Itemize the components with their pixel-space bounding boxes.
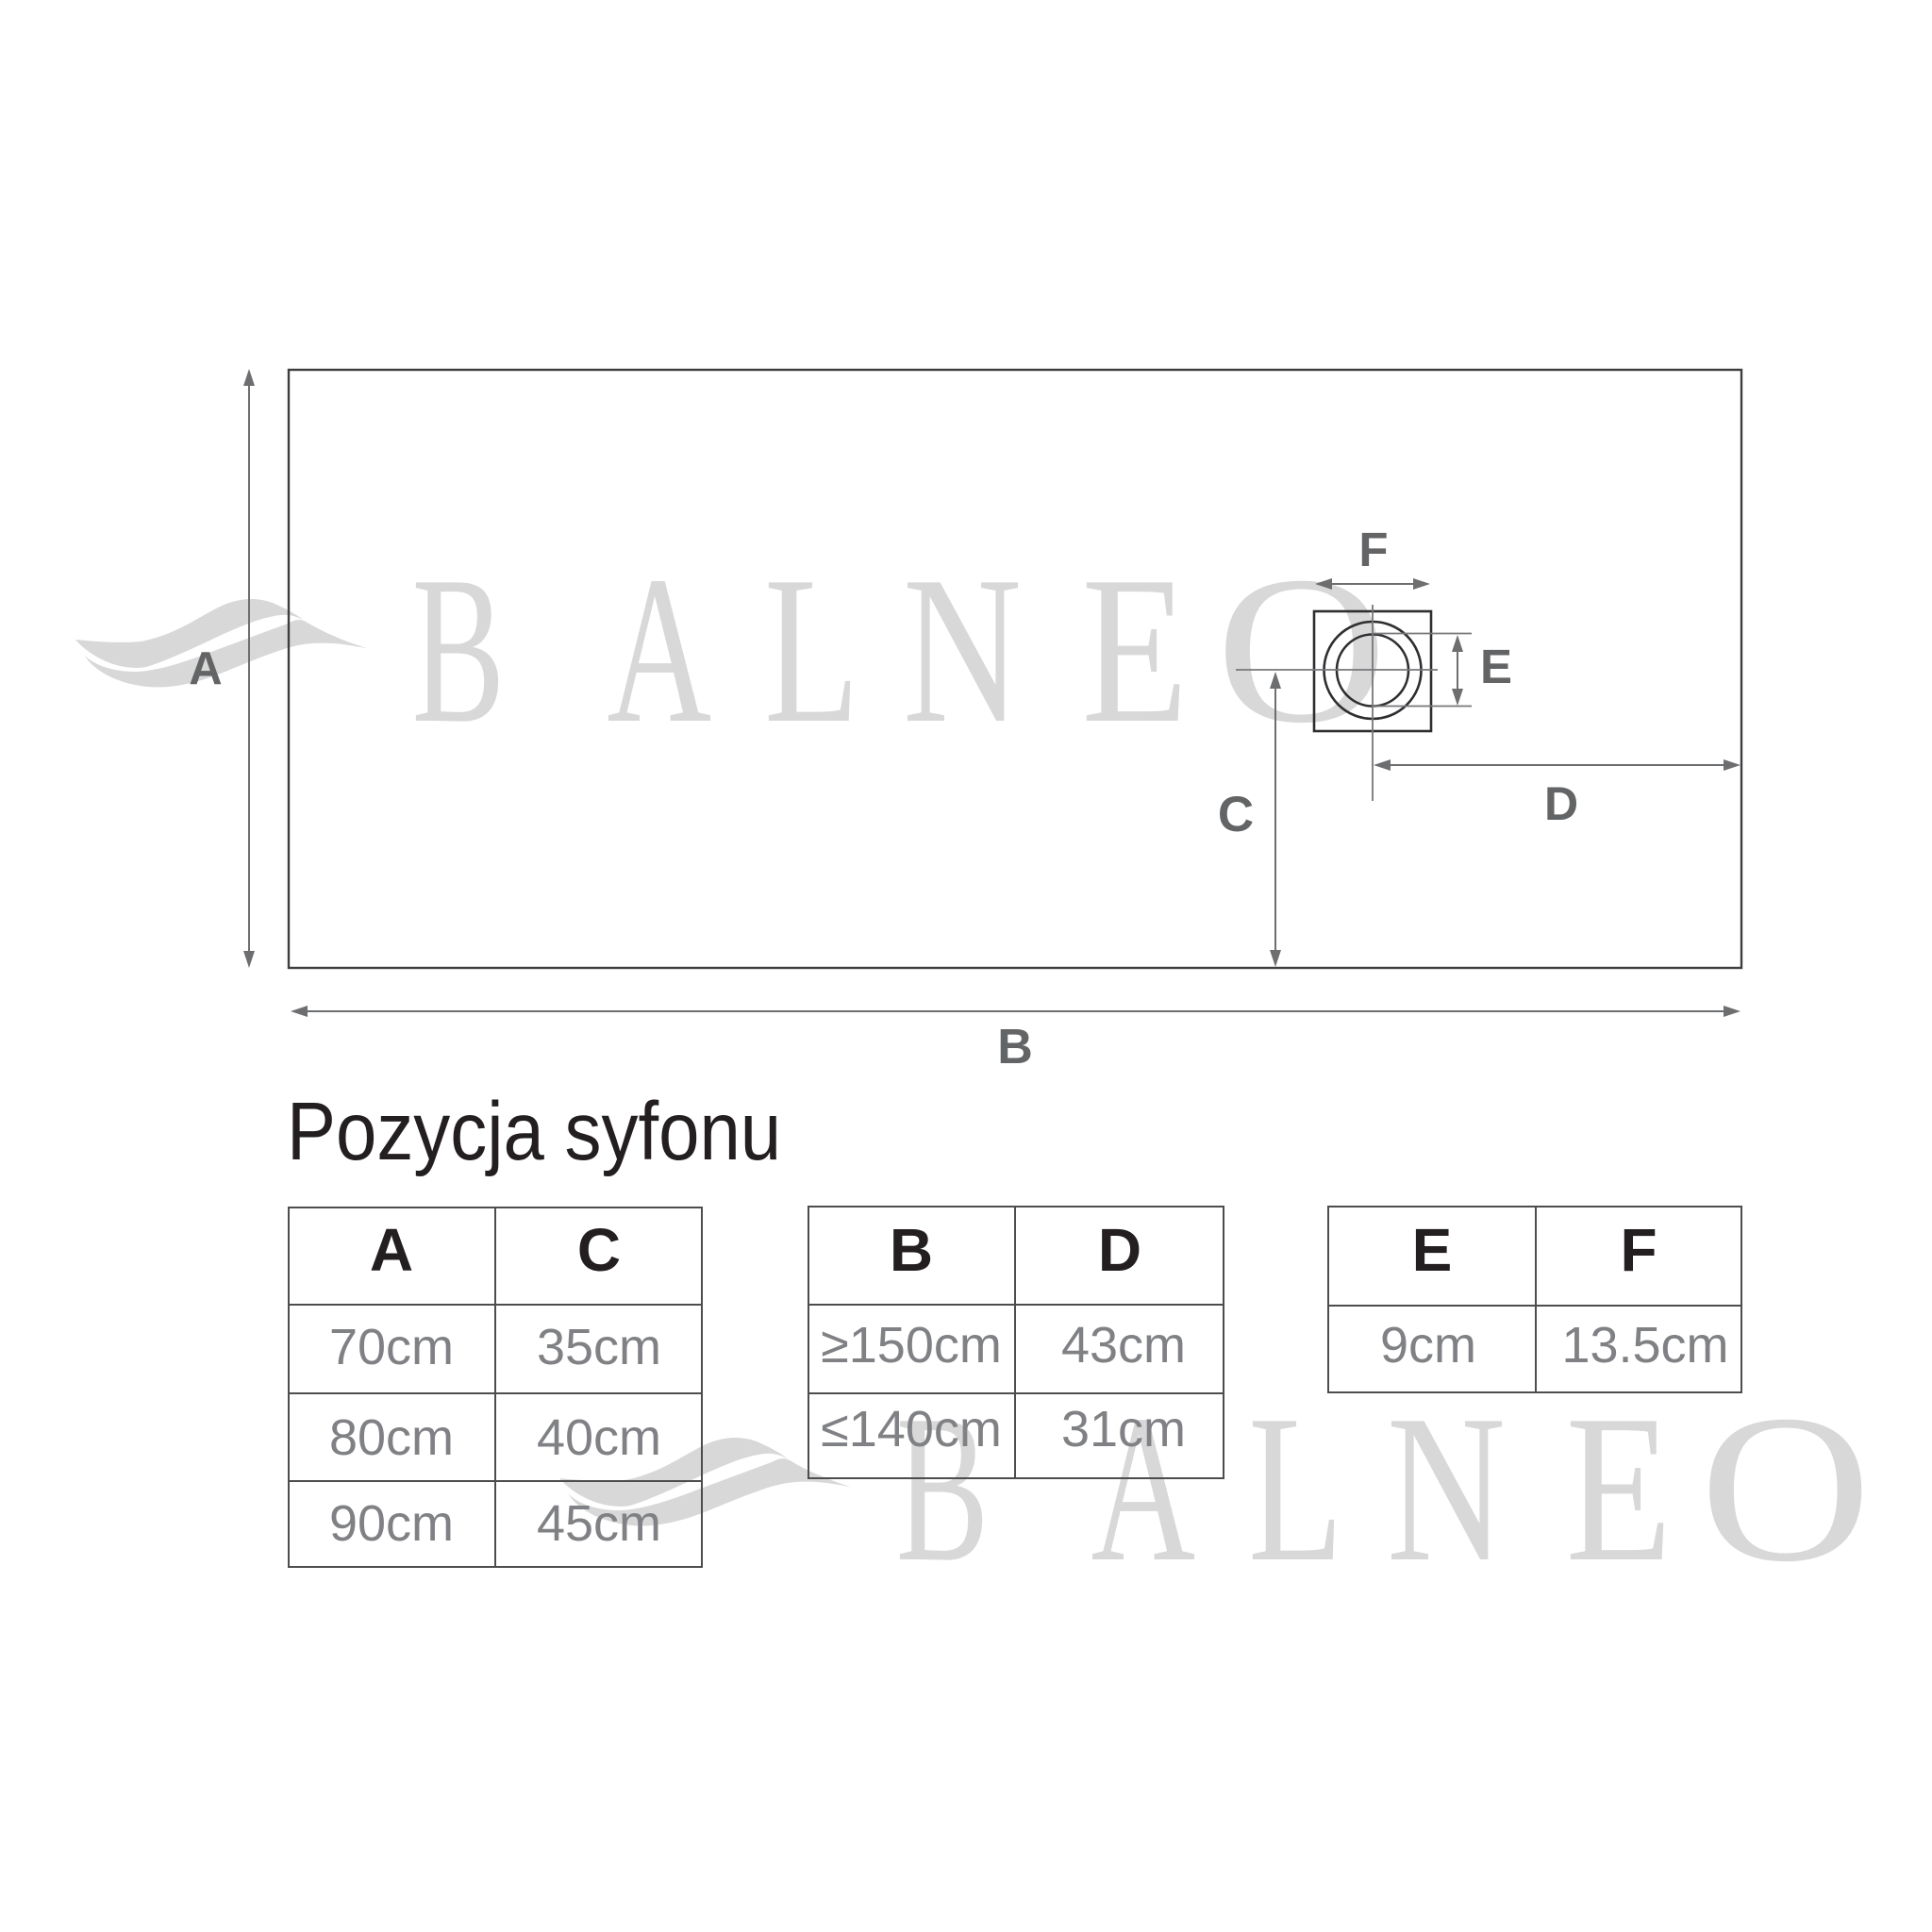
svg-text:80cm: 80cm [329, 1409, 454, 1466]
svg-text:C: C [577, 1216, 621, 1284]
svg-text:A: A [189, 643, 222, 694]
svg-text:≥150cm: ≥150cm [821, 1317, 1002, 1374]
svg-text:C: C [1218, 787, 1254, 842]
svg-text:N: N [1387, 1372, 1506, 1606]
svg-text:L: L [1248, 1372, 1343, 1606]
svg-text:E: E [1566, 1373, 1673, 1607]
svg-text:13.5cm: 13.5cm [1561, 1317, 1728, 1374]
svg-text:L: L [764, 533, 859, 767]
svg-text:90cm: 90cm [329, 1495, 454, 1552]
svg-text:70cm: 70cm [329, 1319, 454, 1375]
svg-text:E: E [1412, 1216, 1453, 1284]
svg-text:D: D [1544, 777, 1578, 830]
svg-text:43cm: 43cm [1061, 1317, 1186, 1374]
svg-text:N: N [903, 533, 1022, 767]
svg-text:45cm: 45cm [537, 1495, 661, 1552]
svg-text:O: O [1700, 1372, 1872, 1606]
svg-text:35cm: 35cm [537, 1319, 661, 1375]
svg-text:A: A [370, 1216, 413, 1284]
svg-text:Pozycja syfonu: Pozycja syfonu [287, 1085, 781, 1177]
svg-text:F: F [1620, 1216, 1657, 1284]
svg-text:B: B [997, 1020, 1033, 1074]
svg-text:40cm: 40cm [537, 1409, 661, 1466]
svg-text:B: B [412, 534, 506, 768]
svg-text:9cm: 9cm [1380, 1317, 1476, 1374]
svg-text:B: B [890, 1216, 933, 1284]
svg-text:E: E [1082, 534, 1189, 768]
svg-text:F: F [1358, 523, 1388, 576]
svg-text:≤140cm: ≤140cm [821, 1401, 1002, 1457]
svg-text:D: D [1098, 1216, 1141, 1284]
svg-text:E: E [1480, 640, 1512, 693]
svg-text:31cm: 31cm [1061, 1401, 1186, 1457]
svg-text:A: A [608, 532, 712, 767]
